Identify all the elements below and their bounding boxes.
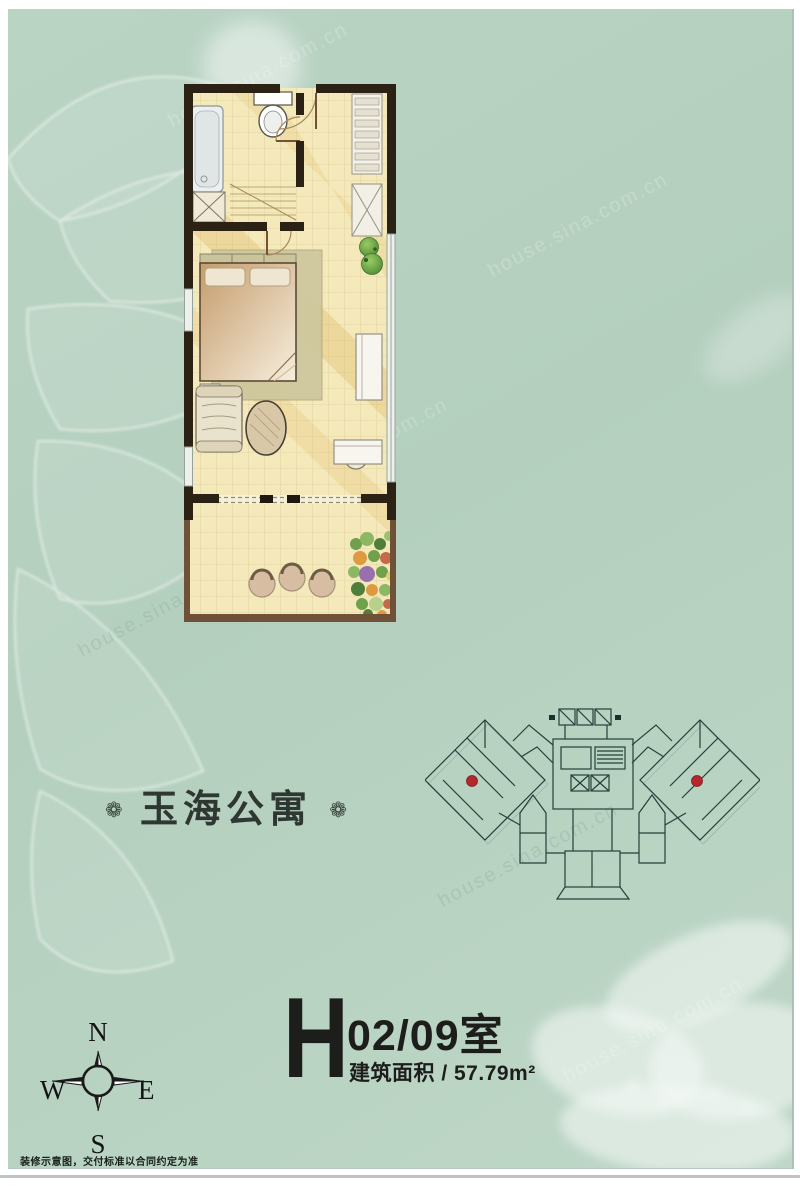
oval-lounge [246,401,286,455]
floor-plan [184,84,396,626]
kitchen-counter [352,94,382,174]
shower-box [193,192,225,222]
compass-west-label: W [40,1077,65,1104]
watermark-text: house.sina.com.cn [484,168,672,283]
unit-number: 02/09室 [347,1015,504,1058]
compass-north-label: N [38,1019,158,1046]
dresser [356,334,382,400]
floorplan-poster: { "title_plate": { "ornament_left": "❁",… [0,0,800,1185]
unit-letter: H [283,993,349,1084]
unit-marker [467,776,703,787]
disclaimer-text: 装修示意图，交付标准以合同约定为准 [20,1153,199,1168]
title-plate: ❁ 玉海公寓 ❁ [105,786,347,834]
rosette-icon: ❁ [105,800,123,821]
project-title: 玉海公寓 [140,791,312,829]
double-bed [200,254,296,381]
wardrobe [352,184,382,236]
bathtub [191,106,223,192]
compass-east-label: E [138,1077,155,1104]
poster-canvas: house.sina.com.cn house.sina.com.cn hous… [8,9,794,1169]
site-plan [425,693,760,921]
light-blob [691,278,794,398]
sofa [196,386,242,452]
unit-area: 建筑面积 / 57.79m² [349,1061,536,1086]
rosette-icon: ❁ [329,800,347,821]
bottom-rule [0,1175,800,1178]
balcony-slider [217,495,361,504]
compass-rose: N W E S [38,1019,158,1161]
flower-watermark [513,921,794,1169]
